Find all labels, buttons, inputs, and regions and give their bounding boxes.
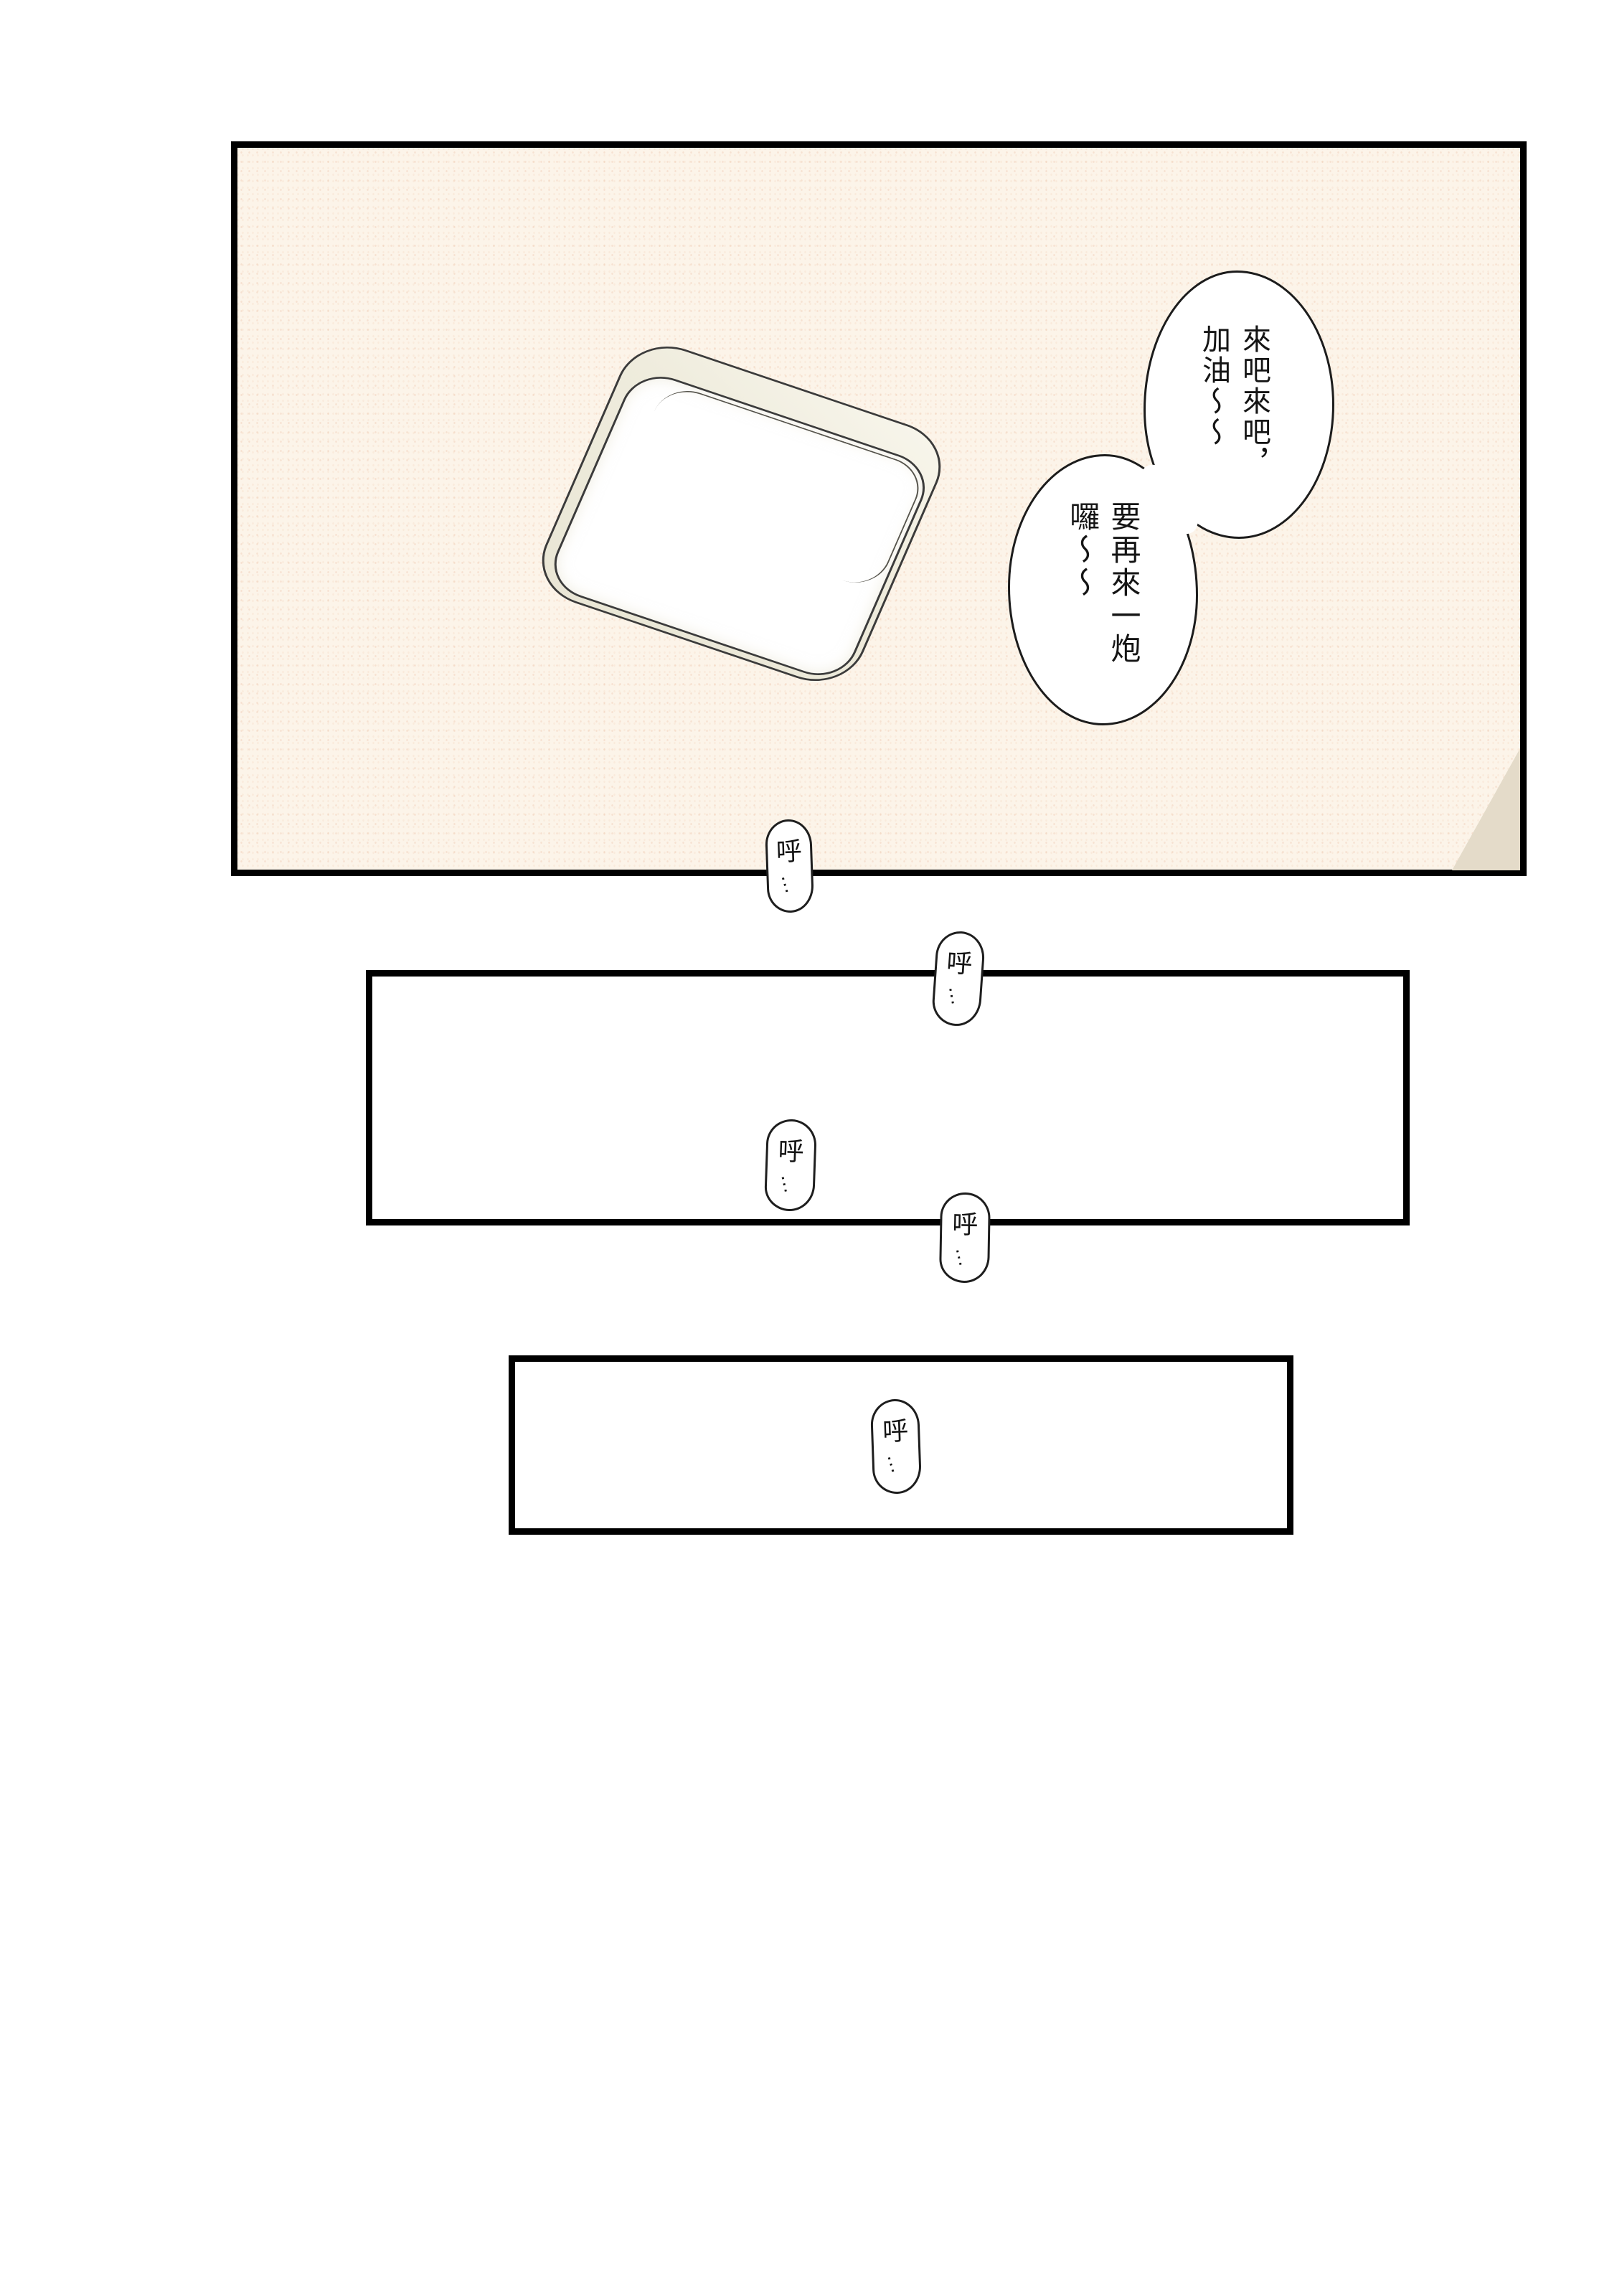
speech-column: 要再來一炮 — [1103, 501, 1144, 695]
breath-bubble: 呼 … — [764, 1119, 817, 1212]
breath-bubble: 呼 … — [939, 1192, 991, 1283]
breath-text: 呼 — [936, 941, 983, 982]
breath-ellipsis: … — [776, 870, 805, 899]
breath-ellipsis: … — [951, 1244, 978, 1271]
breath-ellipsis: … — [882, 1450, 911, 1479]
breath-text: 呼 — [767, 830, 811, 869]
breath-bubble: 呼 … — [870, 1398, 923, 1495]
breath-bubble: 呼 … — [765, 819, 814, 913]
breath-ellipsis: … — [776, 1171, 803, 1198]
breath-text: 呼 — [768, 1130, 815, 1169]
breath-text: 呼 — [872, 1410, 918, 1449]
comic-page: { "page": { "type": "comic-page", "backg… — [0, 0, 1622, 2296]
breath-text: 呼 — [942, 1203, 989, 1241]
speech-column: 來吧來吧， — [1234, 324, 1274, 540]
speech-column: 囉～～ — [1062, 501, 1103, 695]
breath-ellipsis: … — [944, 983, 971, 1010]
speech-column: 加油～～ — [1194, 324, 1234, 540]
panel-2 — [366, 970, 1410, 1225]
speech-text-left: 要再來一炮 囉～～ — [1062, 501, 1144, 695]
speech-text-right: 來吧來吧， 加油～～ — [1194, 324, 1274, 540]
